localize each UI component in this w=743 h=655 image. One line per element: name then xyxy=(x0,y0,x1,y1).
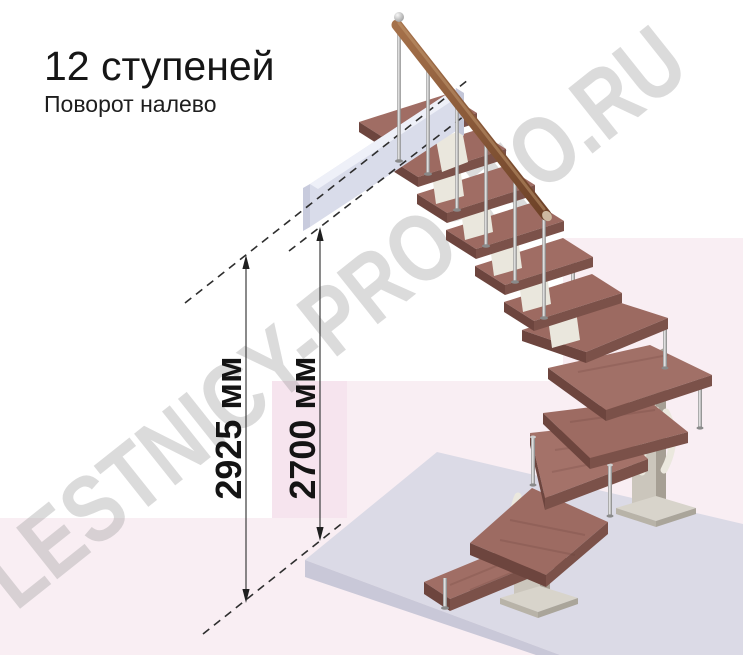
dimension-label-2925: 2925 мм xyxy=(208,356,249,499)
handrail-ball-cap xyxy=(394,12,404,22)
staircase-diagram: LESTNICY-PROSTO.RU 2925 мм 2700 мм xyxy=(0,0,743,655)
page-title: 12 ступеней xyxy=(44,43,275,89)
staircase-diagram-page: LESTNICY-PROSTO.RU 2925 мм 2700 мм xyxy=(0,0,743,655)
page-subtitle: Поворот налево xyxy=(44,91,217,117)
dimension-label-2700: 2700 мм xyxy=(282,356,323,499)
